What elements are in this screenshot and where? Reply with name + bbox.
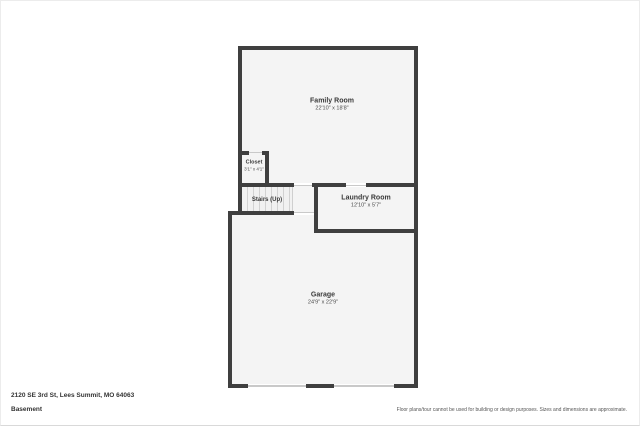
landing-garage-opening: [294, 212, 314, 213]
stairs-edge-line: [292, 187, 293, 213]
wall-garage-bottom-left: [228, 384, 248, 388]
laundry-door-opening: [346, 185, 366, 186]
room-dimensions: 12'10" x 5'7": [341, 203, 390, 210]
room-name: Garage: [308, 291, 338, 300]
wall-laundry-bottom: [314, 229, 418, 233]
room-label-closet: Closet 3'1" x 4'1": [244, 159, 264, 172]
wall-garage-left: [228, 211, 232, 388]
wall-garage-bottom-mid: [306, 384, 334, 388]
room-dimensions: 22'10" x 18'8": [310, 106, 354, 113]
wall-family-top: [238, 46, 418, 50]
room-fill-landing: [293, 186, 314, 212]
room-dimensions: 24'9" x 22'9": [308, 300, 338, 307]
floor-level-label: Basement: [11, 406, 42, 413]
garage-door-opening-right: [334, 385, 394, 387]
room-name: Family Room: [310, 97, 354, 106]
wall-right-outer: [414, 46, 418, 388]
floor-plan-page: Family Room 22'10" x 18'8" Closet 3'1" x…: [0, 0, 640, 426]
garage-door-opening-left: [248, 385, 306, 387]
wall-laundry-left: [314, 185, 318, 233]
room-label-family-room: Family Room 22'10" x 18'8": [310, 97, 354, 114]
wall-garage-top: [228, 211, 294, 215]
disclaimer-text: Floor plans/tour cannot be used for buil…: [397, 407, 627, 413]
room-label-garage: Garage 24'9" x 22'9": [308, 291, 338, 308]
room-name: Laundry Room: [341, 194, 390, 203]
wall-family-bottom-right: [366, 183, 414, 187]
wall-closet-right: [265, 151, 269, 187]
room-label-stairs: Stairs (Up): [252, 196, 282, 204]
room-name: Stairs (Up): [252, 196, 282, 204]
wall-family-left: [238, 46, 242, 213]
room-dimensions: 3'1" x 4'1": [244, 167, 264, 173]
closet-door-opening: [249, 152, 262, 153]
wall-garage-bottom-right: [394, 384, 418, 388]
room-label-laundry-room: Laundry Room 12'10" x 5'7": [341, 194, 390, 211]
wall-closet-top-left: [242, 151, 249, 155]
landing-top-opening: [294, 185, 314, 186]
property-address: 2120 SE 3rd St, Lees Summit, MO 64063: [11, 392, 134, 399]
room-name: Closet: [244, 159, 264, 166]
